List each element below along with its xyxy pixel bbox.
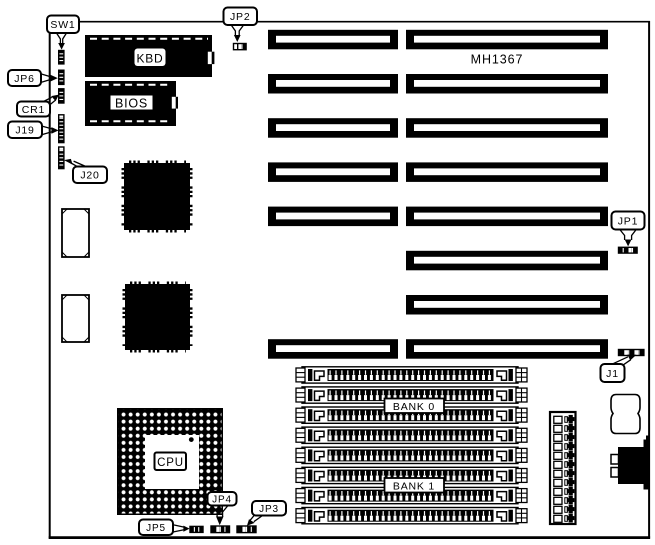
svg-text:MH1367: MH1367 — [471, 53, 524, 67]
svg-text:BANK 1: BANK 1 — [393, 481, 435, 493]
svg-text:JP4: JP4 — [212, 495, 232, 506]
svg-text:SW1: SW1 — [50, 19, 75, 31]
svg-text:JP1: JP1 — [618, 215, 639, 227]
svg-text:J19: J19 — [15, 125, 34, 137]
svg-text:CR1: CR1 — [22, 104, 45, 116]
svg-text:BIOS: BIOS — [115, 96, 148, 110]
svg-text:CPU: CPU — [157, 457, 184, 469]
svg-text:JP6: JP6 — [14, 73, 35, 85]
svg-text:JP3: JP3 — [259, 504, 279, 515]
svg-text:KBD: KBD — [136, 51, 163, 65]
svg-text:J1: J1 — [606, 368, 619, 380]
svg-text:JP2: JP2 — [230, 11, 251, 23]
svg-text:JP5: JP5 — [146, 523, 166, 534]
svg-text:BANK 0: BANK 0 — [393, 401, 435, 413]
svg-text:J20: J20 — [80, 170, 99, 182]
